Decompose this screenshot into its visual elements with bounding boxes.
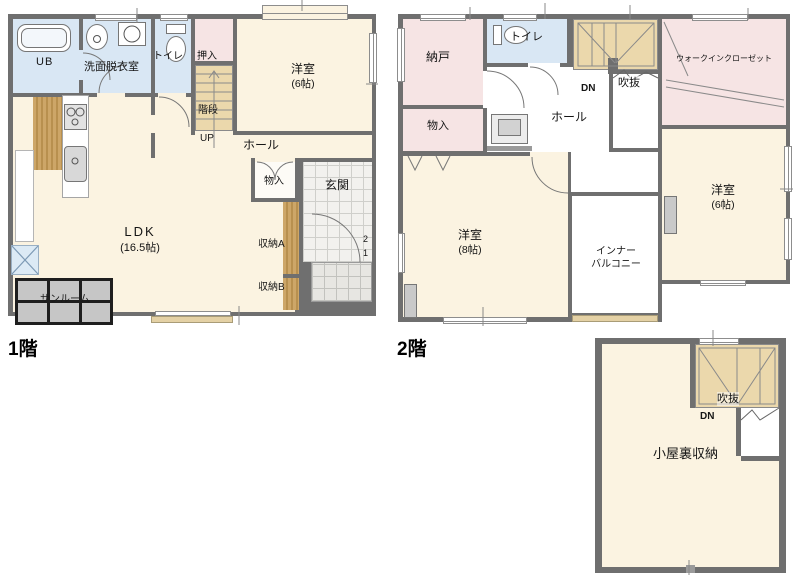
window [160, 14, 188, 21]
wood-deck-strip [33, 97, 63, 170]
window [784, 218, 792, 260]
niche-box [11, 245, 39, 275]
wall-seg [736, 408, 741, 456]
bay-window [262, 5, 348, 20]
floor1-title: 1階 [8, 334, 38, 361]
stairs-1f [195, 65, 233, 131]
label-oshiire: 押入 [197, 50, 217, 63]
door-opening [528, 63, 560, 67]
window [397, 28, 405, 82]
room-size: (8帖) [435, 244, 505, 258]
wall-seg [609, 148, 658, 152]
label-fukinuke-attic: 吹抜 [717, 392, 739, 406]
wall-seg [283, 274, 299, 278]
wall-seg [151, 97, 155, 115]
label-kaidan: 階段 [198, 104, 218, 117]
window [503, 14, 537, 21]
door-opening [97, 93, 125, 97]
label-senmen: 洗面脱衣室 [84, 60, 139, 74]
label-shuno-b: 収納B [258, 281, 285, 294]
washbasin-bowl [498, 119, 521, 136]
label-hall-2f: ホール [551, 110, 587, 126]
kitchen-sink-icon [64, 146, 87, 182]
label-yoshitsu6-1f: 洋室(6帖) [270, 62, 336, 91]
label-shuno-a: 収納A [258, 238, 285, 251]
stove-icon [64, 104, 87, 130]
label-dn-2f: DN [581, 82, 595, 95]
wall-seg [299, 158, 303, 312]
bathtub-inner [21, 28, 67, 48]
counter-edge [487, 146, 532, 151]
door-opening [530, 152, 568, 156]
label-dn-attic: DN [700, 410, 714, 423]
shelf-icon [404, 284, 417, 318]
wall-seg [151, 133, 155, 158]
room-wic [662, 19, 786, 125]
wall-seg [237, 131, 372, 135]
wall-seg [609, 74, 613, 152]
label-wic: ウォークインクローゼット [662, 54, 786, 64]
label-ldk: LDK(16.5帖) [95, 224, 185, 255]
closet-wood-front [283, 202, 299, 310]
window-sill [151, 316, 233, 323]
label-yoshitsu8: 洋室(8帖) [435, 228, 505, 257]
floor-plan: UB 洗面脱衣室 トイレ 押入 階段 UP 洋室(6帖) ホール LDK(16.… [0, 0, 800, 577]
label-monoire-2f: 物入 [427, 119, 449, 133]
room-name: 洋室 [435, 228, 505, 244]
room-size: (6帖) [688, 199, 758, 213]
window [420, 14, 466, 21]
room-name: 洋室 [270, 62, 336, 78]
label-up: UP [200, 132, 214, 145]
label-koyaura: 小屋裏収納 [653, 446, 718, 463]
label-toilet-1f: トイレ [153, 50, 183, 63]
window [369, 33, 377, 83]
label-fukinuke-2f: 吹抜 [618, 76, 640, 90]
label-hall-1f: ホール [243, 138, 279, 154]
label-inner-balcony: インナーバルコニー [580, 245, 652, 271]
label-monoire-1f: 物入 [264, 175, 284, 188]
room-size: (6帖) [270, 78, 336, 92]
toilet-tank-icon [166, 24, 186, 34]
window [443, 317, 527, 324]
window [398, 233, 405, 273]
void-attic [741, 408, 779, 456]
label-nando: 納戸 [426, 50, 450, 66]
corridor-1f [155, 97, 191, 135]
balcony-rail [572, 315, 658, 322]
wall-seg [191, 97, 195, 135]
toilet-tank-icon [493, 25, 502, 45]
label-sunroom: サンルーム [40, 293, 90, 306]
window [784, 146, 792, 192]
wall-seg [741, 456, 779, 461]
wall-seg [251, 198, 299, 202]
washbasin-icon [86, 24, 108, 50]
stair-post [608, 58, 618, 74]
window [700, 280, 746, 286]
door-opening [79, 50, 83, 80]
washing-machine-icon [118, 22, 146, 46]
balcony-line1: インナー [580, 245, 652, 258]
wall-seg [251, 158, 255, 202]
room-size: (16.5帖) [95, 241, 185, 255]
hall-2f-ext [571, 152, 658, 192]
door-opening [158, 93, 186, 97]
window [95, 14, 137, 21]
label-toilet-2f: トイレ [510, 30, 543, 44]
genkan [303, 162, 372, 262]
side-counter [15, 150, 34, 242]
shelf-icon [664, 196, 677, 234]
wall-seg [233, 97, 237, 135]
door-opening [483, 71, 487, 108]
label-yoshitsu6-2f: 洋室(6帖) [688, 183, 758, 212]
room-name: LDK [95, 224, 185, 241]
label-ub: UB [36, 55, 53, 69]
label-step1: 1 [363, 248, 368, 260]
label-genkan: 玄関 [325, 178, 349, 194]
window [699, 338, 739, 345]
window [692, 14, 748, 21]
wall-seg [690, 344, 695, 408]
balcony-line2: バルコニー [580, 258, 652, 271]
floor2-title: 2階 [397, 334, 427, 361]
label-step2: 2 [363, 234, 368, 246]
entrance-porch [311, 262, 372, 302]
wall-post [686, 565, 695, 573]
room-name: 洋室 [688, 183, 758, 199]
